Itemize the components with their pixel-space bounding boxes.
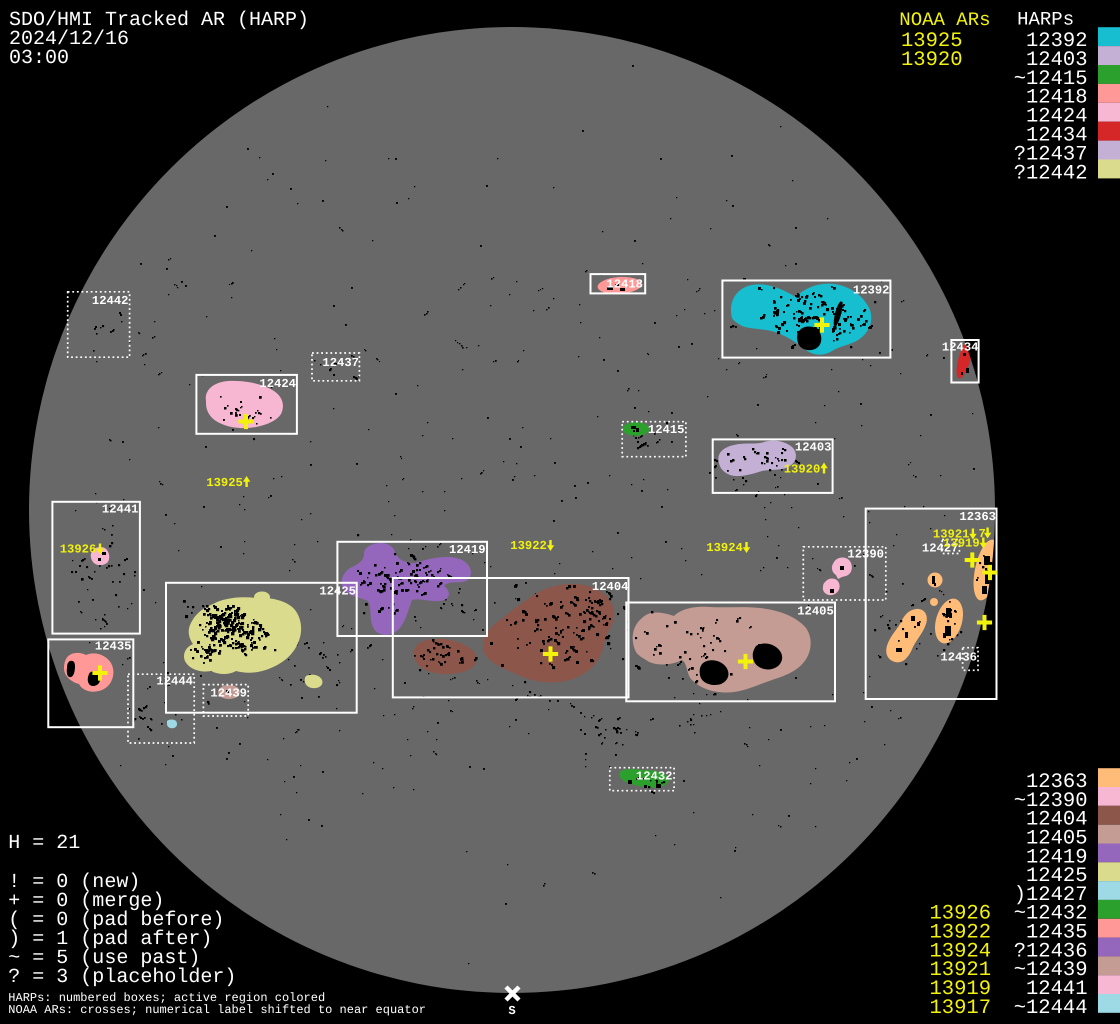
svg-text:13917: 13917: [929, 997, 991, 1020]
svg-text:12405: 12405: [797, 605, 834, 619]
svg-text:13926: 13926: [60, 543, 97, 557]
svg-text:12442: 12442: [92, 294, 129, 308]
svg-text:NOAA ARs: NOAA ARs: [899, 9, 990, 31]
svg-text:12392: 12392: [853, 284, 890, 298]
svg-text:12444: 12444: [156, 675, 193, 689]
svg-text:13924: 13924: [706, 541, 743, 555]
svg-text:12441: 12441: [102, 503, 139, 517]
svg-text:12419: 12419: [449, 543, 486, 557]
svg-text:03:00: 03:00: [9, 47, 69, 70]
svg-text:H = 21: H = 21: [8, 832, 80, 855]
svg-text:13922: 13922: [510, 539, 547, 553]
svg-text:12435: 12435: [95, 640, 132, 654]
svg-text:S: S: [508, 1004, 515, 1018]
svg-text:13920: 13920: [901, 49, 963, 72]
svg-text:12418: 12418: [606, 278, 643, 292]
svg-text:12439: 12439: [210, 687, 247, 701]
svg-text:12432: 12432: [636, 770, 673, 784]
svg-text:NOAA ARs: crosses; numerical l: NOAA ARs: crosses; numerical label shift…: [8, 1003, 426, 1017]
svg-text:13925: 13925: [206, 476, 243, 490]
svg-text:13919: 13919: [943, 537, 980, 551]
svg-text:12434: 12434: [942, 341, 979, 355]
svg-text:HARPs: HARPs: [1017, 9, 1074, 31]
svg-text:? = 3 (placeholder): ? = 3 (placeholder): [8, 966, 236, 989]
svg-text:12363: 12363: [959, 510, 996, 524]
svg-text:~12444: ~12444: [1014, 997, 1088, 1020]
svg-text:12415: 12415: [648, 423, 685, 437]
svg-text:12403: 12403: [795, 441, 832, 455]
svg-text:12404: 12404: [592, 580, 629, 594]
svg-text:12437: 12437: [322, 356, 359, 370]
svg-text:12436: 12436: [940, 651, 977, 665]
svg-text:13920: 13920: [784, 463, 821, 477]
svg-text:?12442: ?12442: [1014, 162, 1088, 185]
svg-text:12424: 12424: [259, 377, 296, 391]
svg-text:12425: 12425: [319, 585, 356, 599]
